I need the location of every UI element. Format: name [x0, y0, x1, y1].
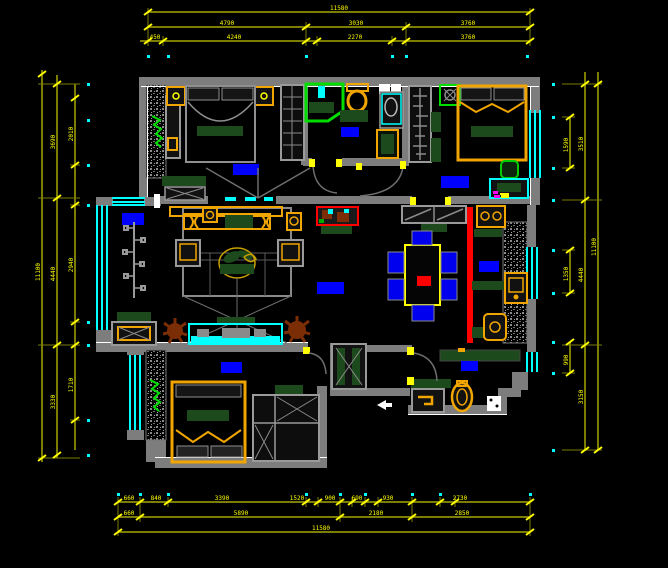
svg-text:900: 900 [325, 495, 336, 502]
wall-picture [317, 207, 358, 225]
bathroom-door [313, 166, 403, 196]
svg-text:840: 840 [151, 495, 162, 502]
plant-rack [123, 222, 145, 298]
door-master [206, 168, 310, 198]
balcony [112, 213, 156, 345]
coffee-table-plant [219, 248, 256, 278]
kitchen-sink [505, 273, 527, 303]
stove [477, 206, 505, 227]
living-room [163, 207, 310, 344]
svg-text:3690: 3690 [50, 134, 57, 149]
desk-chair [490, 161, 528, 198]
bedroom3-door [309, 353, 326, 374]
svg-text:3760: 3760 [461, 20, 476, 27]
svg-text:450: 450 [150, 34, 161, 41]
prep-sink [484, 314, 506, 340]
room-label-entry [461, 361, 478, 371]
entry-arrow [377, 400, 392, 410]
washing-machine [377, 130, 398, 158]
wardrobe-3 [253, 395, 319, 461]
svg-text:3390: 3390 [215, 495, 230, 502]
sofa [170, 207, 301, 230]
dining-room [388, 206, 473, 343]
master-bedroom [152, 85, 310, 200]
bedroom-3 [150, 347, 326, 462]
svg-text:1710: 1710 [68, 377, 75, 392]
svg-text:5890: 5890 [234, 510, 249, 517]
svg-text:1350: 1350 [563, 266, 570, 281]
svg-text:3150: 3150 [578, 389, 585, 404]
entry-door [414, 353, 437, 381]
svg-text:1590: 1590 [563, 137, 570, 152]
vanity [380, 92, 403, 128]
svg-text:2730: 2730 [453, 495, 468, 502]
vase [452, 381, 472, 411]
svg-text:11100: 11100 [35, 263, 42, 281]
room-label-hallway [317, 282, 344, 294]
dice-ornament [487, 396, 501, 411]
drying-rack [409, 86, 441, 162]
svg-text:4790: 4790 [220, 20, 235, 27]
floorplan-canvas: 11580 4790 3030 3760 450 4240 2270 3760 … [0, 0, 668, 568]
balcony-bench [112, 312, 156, 345]
bathroom [306, 84, 403, 158]
entry-cabinet [332, 344, 366, 389]
floor-plant-right [284, 316, 310, 342]
svg-text:1520: 1520 [290, 495, 305, 502]
bedroom-2 [440, 85, 528, 198]
room-label-bedroom-3 [221, 362, 242, 373]
bed-3 [172, 382, 245, 462]
svg-text:690: 690 [352, 495, 363, 502]
room-label-bedroom-2 [441, 176, 469, 188]
svg-text:2270: 2270 [348, 34, 363, 41]
svg-text:4440: 4440 [50, 266, 57, 281]
svg-text:3510: 3510 [578, 136, 585, 151]
svg-text:660: 660 [124, 510, 135, 517]
svg-text:660: 660 [124, 495, 135, 502]
bench-master [162, 176, 206, 200]
bed-2 [458, 86, 526, 160]
room-label-bathroom [341, 127, 359, 137]
floor-plant-left [163, 318, 187, 343]
svg-text:2180: 2180 [369, 510, 384, 517]
shoe-bench [412, 389, 444, 412]
svg-text:3330: 3330 [50, 394, 57, 409]
svg-text:11100: 11100 [591, 238, 598, 256]
shower-head [318, 86, 325, 98]
svg-text:11580: 11580 [312, 525, 330, 532]
entry [332, 344, 520, 412]
toilet [347, 84, 368, 111]
svg-text:3030: 3030 [349, 20, 364, 27]
dining-table [405, 245, 440, 305]
svg-text:2940: 2940 [68, 257, 75, 272]
shoe-cabinet [440, 350, 520, 361]
svg-text:930: 930 [383, 495, 394, 502]
room-label-master-bedroom [233, 164, 259, 175]
tv-cabinet [183, 278, 291, 344]
wardrobe-master [281, 85, 304, 160]
svg-text:2010: 2010 [68, 126, 75, 141]
sideboard [402, 206, 466, 232]
bed-master [186, 86, 255, 162]
cad-viewport: 11580 4790 3030 3760 450 4240 2270 3760 … [0, 0, 668, 568]
svg-text:11580: 11580 [330, 5, 348, 12]
svg-text:990: 990 [563, 354, 570, 365]
svg-text:4240: 4240 [227, 34, 242, 41]
sliding-door-red [467, 207, 473, 343]
nightstand-right [255, 87, 273, 105]
nightstand-left [167, 87, 185, 105]
svg-text:3760: 3760 [461, 34, 476, 41]
svg-text:2850: 2850 [455, 510, 470, 517]
svg-text:4440: 4440 [578, 267, 585, 282]
room-label-kitchen [479, 261, 499, 272]
